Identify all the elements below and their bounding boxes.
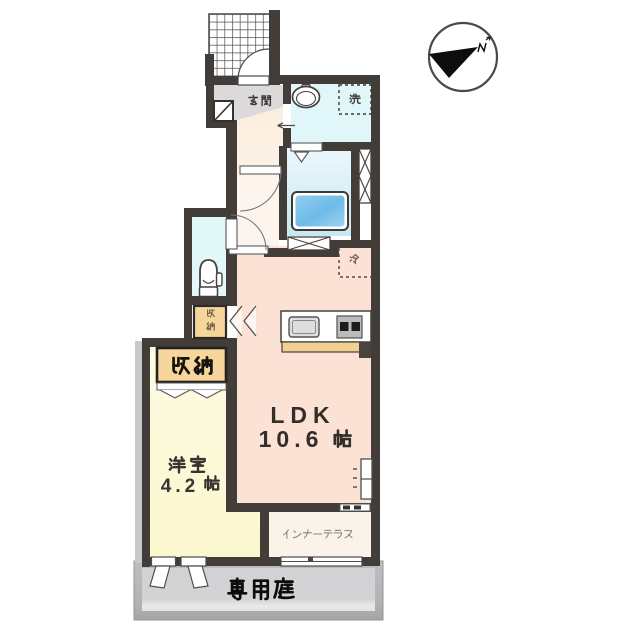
svg-text:10.6: 10.6 (259, 426, 324, 452)
svg-text:LDK: LDK (270, 402, 335, 428)
svg-text:4.2: 4.2 (161, 476, 199, 497)
